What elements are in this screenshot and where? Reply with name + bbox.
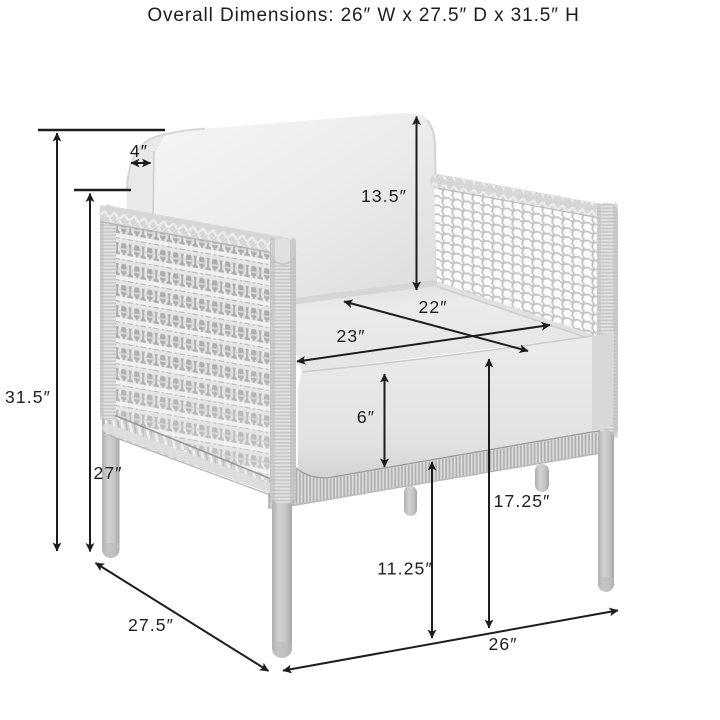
svg-text:Overall Dimensions: 26″ W x 27: Overall Dimensions: 26″ W x 27.5″ D x 31…	[147, 5, 579, 26]
svg-text:6″: 6″	[357, 407, 375, 427]
svg-text:31.5″: 31.5″	[5, 387, 51, 407]
svg-text:17.25″: 17.25″	[494, 491, 551, 511]
svg-text:11.25″: 11.25″	[377, 559, 433, 579]
svg-text:23″: 23″	[336, 326, 365, 346]
svg-text:13.5″: 13.5″	[361, 186, 407, 206]
svg-text:27″: 27″	[93, 463, 122, 483]
svg-text:22″: 22″	[418, 297, 447, 317]
svg-text:27.5″: 27.5″	[128, 615, 174, 635]
svg-text:26″: 26″	[488, 634, 517, 654]
svg-text:4″: 4″	[130, 141, 148, 161]
